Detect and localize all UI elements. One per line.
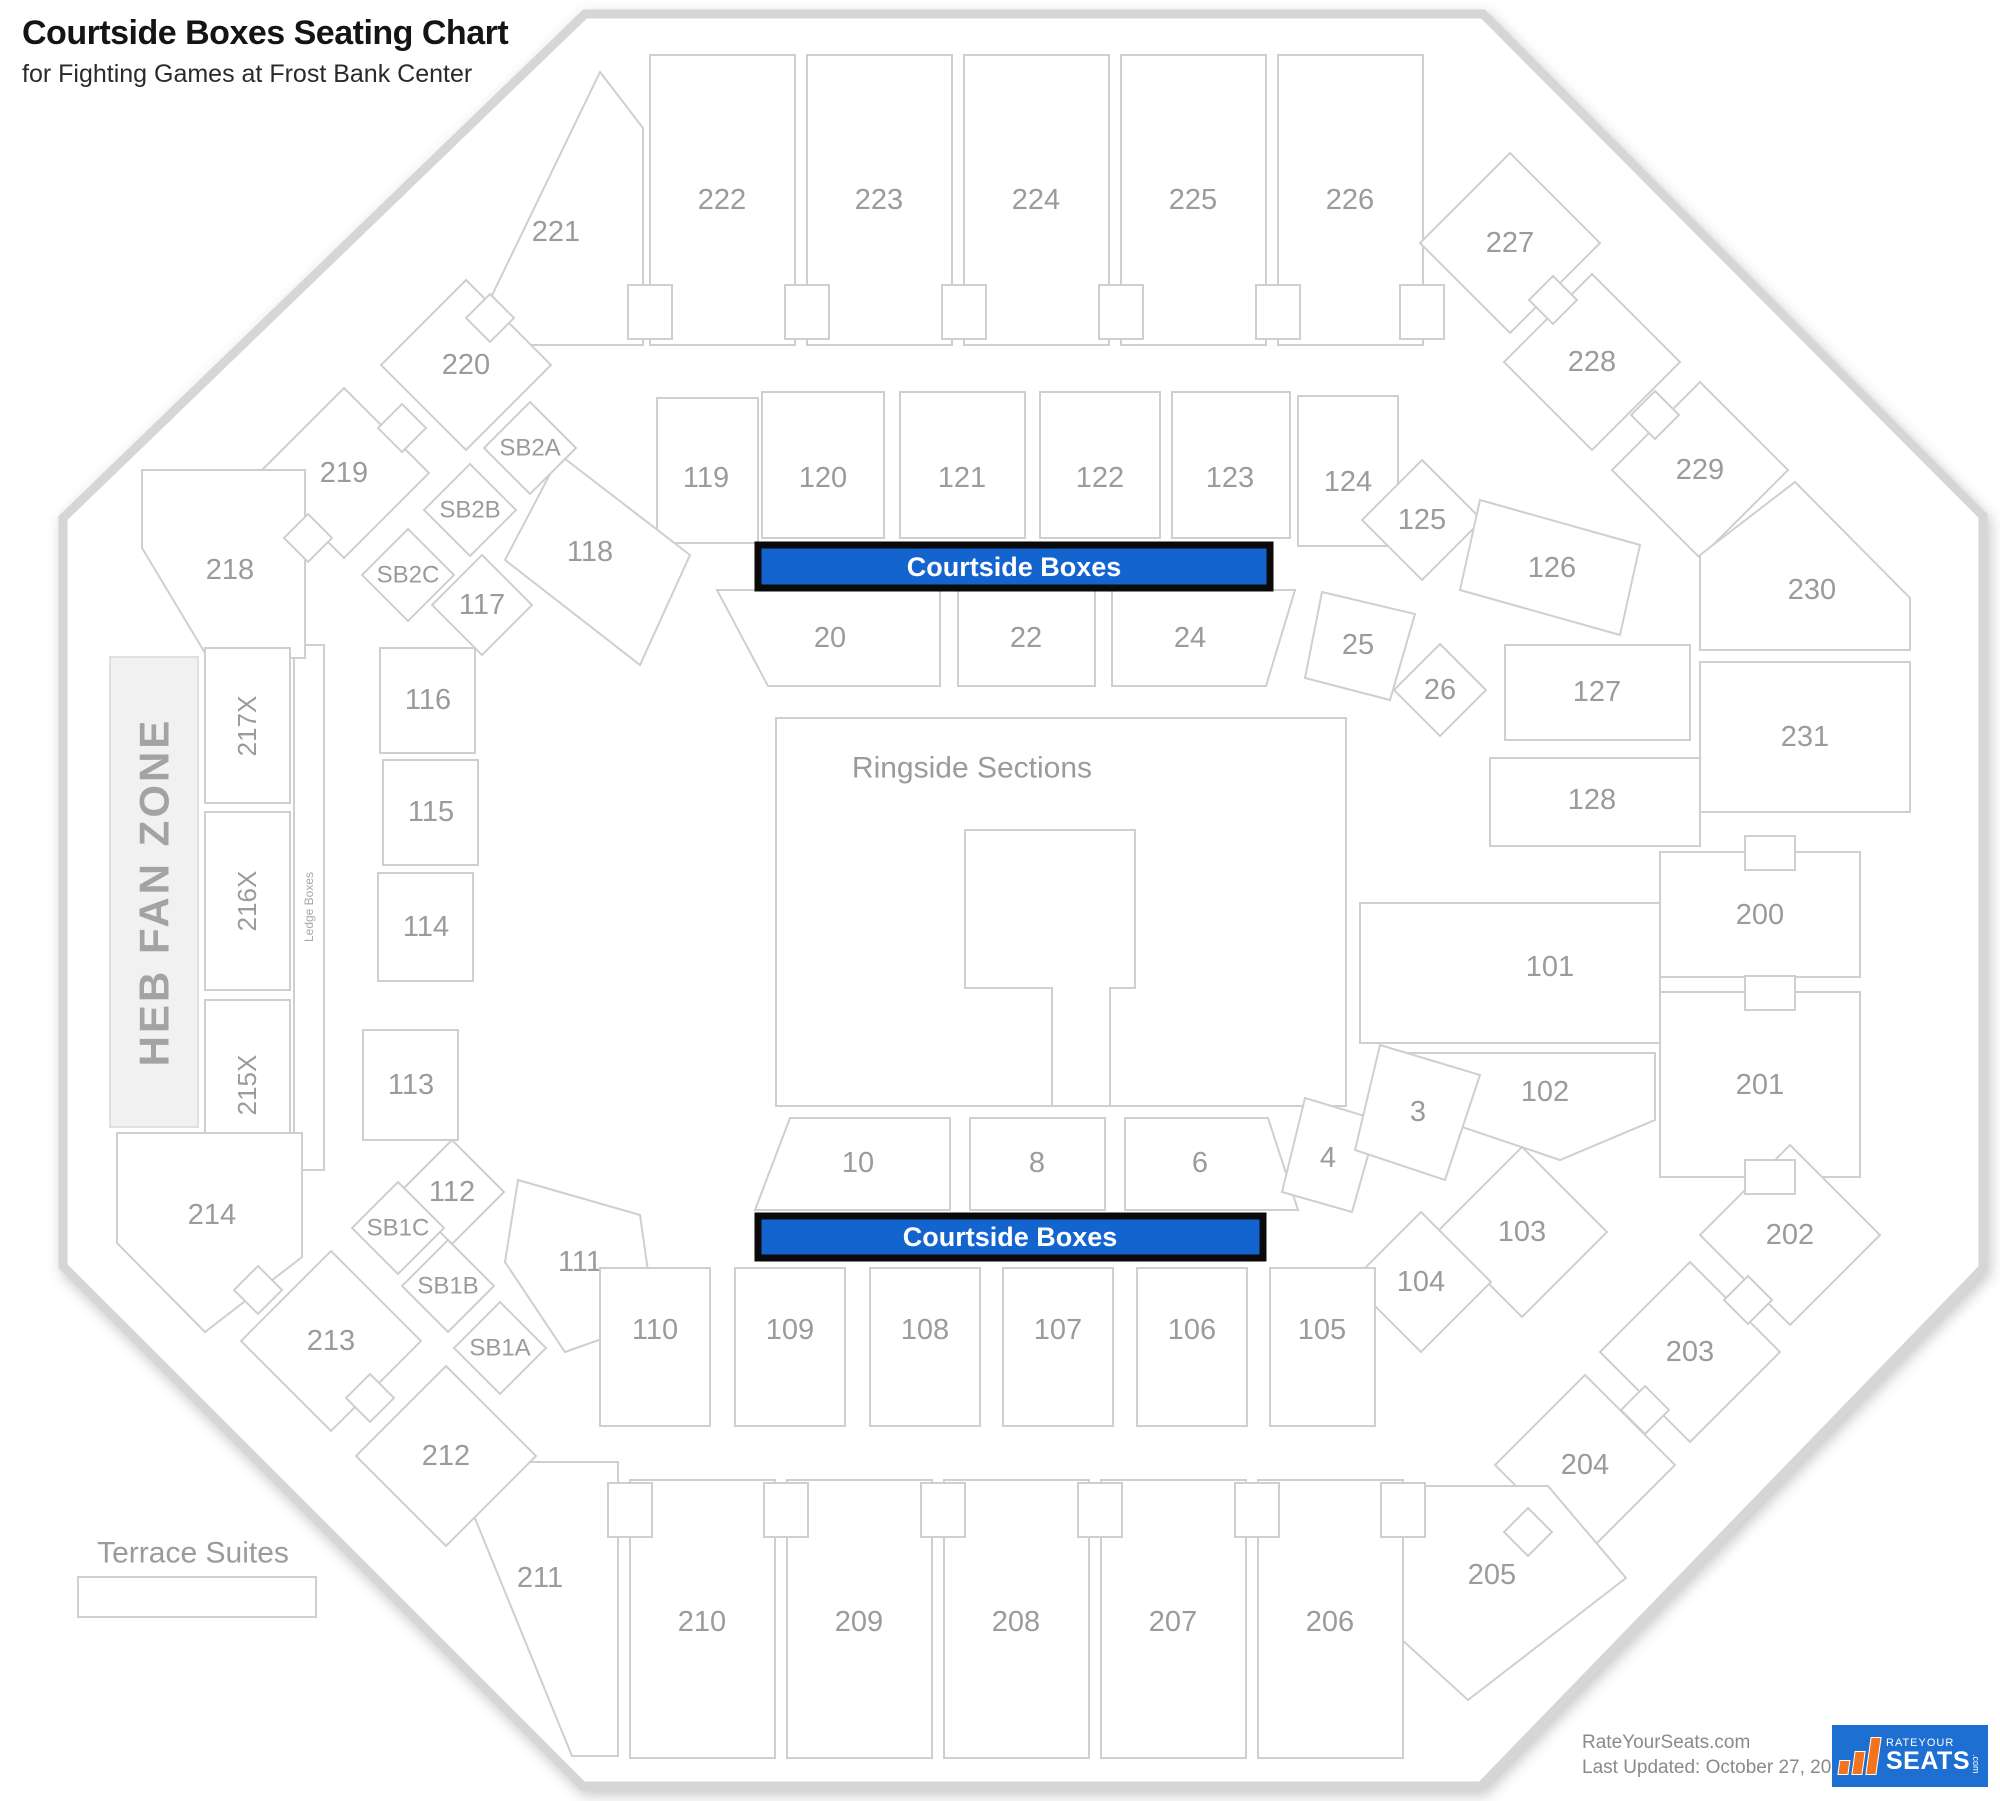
- page-title: Courtside Boxes Seating Chart: [22, 14, 508, 53]
- section-108[interactable]: 108: [870, 1268, 980, 1426]
- courtside-boxes-bottom-label: Courtside Boxes: [903, 1222, 1118, 1252]
- section-109-shape: [735, 1268, 845, 1426]
- section-118-label: 118: [567, 536, 613, 568]
- section-224-label: 224: [1012, 184, 1060, 216]
- ringside-label: Ringside Sections: [852, 752, 1092, 785]
- section-107-shape: [1003, 1268, 1113, 1426]
- section-113-label: 113: [388, 1069, 434, 1101]
- section-201-label: 201: [1736, 1069, 1784, 1101]
- section-217x-label: 217X: [232, 696, 262, 757]
- section-105-shape: [1270, 1268, 1375, 1426]
- section-228-label: 228: [1568, 346, 1616, 378]
- heb-fan-zone-label: HEB FAN ZONE: [131, 718, 178, 1067]
- section-106[interactable]: 106: [1137, 1268, 1247, 1426]
- section-206-label: 206: [1306, 1606, 1354, 1638]
- section-6-shape: [1125, 1118, 1298, 1210]
- section-113[interactable]: 113: [363, 1030, 458, 1140]
- section-201[interactable]: 201: [1660, 992, 1860, 1177]
- section-123-label: 123: [1206, 462, 1254, 494]
- section-sb1a-label: SB1A: [469, 1335, 530, 1362]
- zone-ledge-boxes[interactable]: Ledge Boxes: [294, 645, 324, 1170]
- section-110-shape: [600, 1268, 710, 1426]
- section-226-label: 226: [1326, 184, 1374, 216]
- logo-text: RATEYOUR SEATS.com: [1886, 1738, 1980, 1774]
- section-128-label: 128: [1568, 784, 1616, 816]
- section-120[interactable]: 120: [762, 392, 884, 538]
- section-107[interactable]: 107: [1003, 1268, 1113, 1426]
- section-229-label: 229: [1676, 454, 1724, 486]
- terrace-suites-label: Terrace Suites: [97, 1537, 289, 1570]
- section-116[interactable]: 116: [380, 648, 475, 753]
- section-sb2b-label: SB2B: [439, 497, 500, 524]
- section-123[interactable]: 123: [1172, 392, 1290, 538]
- section-24[interactable]: 24: [1112, 590, 1295, 686]
- section-213-label: 213: [307, 1325, 355, 1357]
- section-218-label: 218: [206, 554, 254, 586]
- section-102-label: 102: [1521, 1076, 1569, 1108]
- section-112-label: 112: [429, 1176, 475, 1208]
- section-120-label: 120: [799, 462, 847, 494]
- section-122-label: 122: [1076, 462, 1124, 494]
- section-20-label: 20: [814, 622, 846, 654]
- section-119-label: 119: [683, 462, 729, 494]
- section-10-label: 10: [842, 1147, 874, 1179]
- section-106-shape: [1137, 1268, 1247, 1426]
- section-109-label: 109: [766, 1314, 814, 1346]
- section-121[interactable]: 121: [900, 392, 1025, 538]
- section-207-label: 207: [1149, 1606, 1197, 1638]
- section-26-label: 26: [1424, 674, 1456, 706]
- section-114-label: 114: [403, 911, 449, 943]
- section-106-label: 106: [1168, 1314, 1216, 1346]
- section-6[interactable]: 6: [1125, 1118, 1298, 1210]
- section-8[interactable]: 8: [970, 1118, 1105, 1210]
- section-231[interactable]: 231: [1700, 662, 1910, 812]
- section-209-label: 209: [835, 1606, 883, 1638]
- section-127[interactable]: 127: [1505, 645, 1690, 740]
- section-110[interactable]: 110: [600, 1268, 710, 1426]
- section-127-label: 127: [1573, 676, 1621, 708]
- section-110-label: 110: [632, 1314, 678, 1346]
- section-8-label: 8: [1029, 1147, 1045, 1179]
- section-105[interactable]: 105: [1270, 1268, 1375, 1426]
- section-25-label: 25: [1342, 629, 1374, 661]
- section-116-label: 116: [405, 684, 451, 716]
- section-103-label: 103: [1498, 1216, 1546, 1248]
- section-10[interactable]: 10: [755, 1118, 950, 1210]
- section-22[interactable]: 22: [958, 590, 1095, 686]
- logo-com: .com: [1971, 1754, 1980, 1774]
- section-22-label: 22: [1010, 622, 1042, 654]
- courtside-boxes-top-label: Courtside Boxes: [907, 552, 1122, 582]
- section-101-label: 101: [1526, 951, 1574, 983]
- section-108-shape: [870, 1268, 980, 1426]
- rateyourseats-logo[interactable]: RATEYOUR SEATS.com: [1832, 1725, 1988, 1787]
- section-3-label: 3: [1410, 1096, 1426, 1128]
- footer-credits: RateYourSeats.com Last Updated: October …: [1582, 1730, 1852, 1780]
- section-109[interactable]: 109: [735, 1268, 845, 1426]
- section-117-label: 117: [459, 589, 505, 621]
- section-219-label: 219: [320, 457, 368, 489]
- section-114[interactable]: 114: [378, 873, 473, 981]
- section-205-label: 205: [1468, 1559, 1516, 1591]
- section-217x[interactable]: 217X: [205, 648, 290, 803]
- section-204-label: 204: [1561, 1449, 1609, 1481]
- seating-map: HEB FAN ZONE Ledge Boxes Ringside Sectio…: [0, 0, 2000, 1801]
- courtside-boxes-bottom[interactable]: Courtside Boxes: [758, 1216, 1263, 1258]
- section-122[interactable]: 122: [1040, 392, 1160, 538]
- page-subtitle: for Fighting Games at Frost Bank Center: [22, 60, 472, 89]
- section-216x-label: 216X: [232, 871, 262, 932]
- section-101[interactable]: 101: [1360, 903, 1660, 1043]
- section-sb1c-label: SB1C: [367, 1215, 430, 1242]
- section-115[interactable]: 115: [383, 760, 478, 865]
- section-126-label: 126: [1528, 552, 1576, 584]
- section-222-label: 222: [698, 184, 746, 216]
- section-221-label: 221: [532, 216, 580, 248]
- section-128[interactable]: 128: [1490, 758, 1700, 846]
- section-231-label: 231: [1781, 721, 1829, 753]
- section-211-label: 211: [517, 1562, 563, 1594]
- section-sb2c-label: SB2C: [377, 562, 440, 589]
- section-220-label: 220: [442, 349, 490, 381]
- section-202-label: 202: [1766, 1219, 1814, 1251]
- logo-seats: SEATS: [1886, 1749, 1970, 1774]
- section-107-label: 107: [1034, 1314, 1082, 1346]
- section-216x[interactable]: 216X: [205, 812, 290, 990]
- section-6-label: 6: [1192, 1147, 1208, 1179]
- section-124-label: 124: [1324, 466, 1372, 498]
- section-200-label: 200: [1736, 899, 1784, 931]
- seating-chart-page: HEB FAN ZONE Ledge Boxes Ringside Sectio…: [0, 0, 2000, 1801]
- section-115-label: 115: [408, 796, 454, 828]
- courtside-boxes-top[interactable]: Courtside Boxes: [758, 545, 1270, 588]
- section-24-label: 24: [1174, 622, 1206, 654]
- section-121-label: 121: [938, 462, 986, 494]
- section-125-label: 125: [1398, 504, 1446, 536]
- section-4-label: 4: [1320, 1142, 1336, 1174]
- logo-barchart-icon: [1837, 1737, 1881, 1775]
- section-104-label: 104: [1397, 1266, 1445, 1298]
- zone-terrace-suites[interactable]: Terrace Suites: [78, 1537, 316, 1618]
- section-108-label: 108: [901, 1314, 949, 1346]
- ledge-boxes-label: Ledge Boxes: [302, 872, 316, 942]
- footer-updated: Last Updated: October 27, 2025: [1582, 1755, 1852, 1780]
- zone-heb-fan-zone[interactable]: HEB FAN ZONE: [110, 657, 198, 1127]
- section-223-label: 223: [855, 184, 903, 216]
- section-119[interactable]: 119: [657, 398, 758, 543]
- section-214-label: 214: [188, 1199, 236, 1231]
- section-230-label: 230: [1788, 574, 1836, 606]
- section-sb1b-label: SB1B: [417, 1273, 478, 1300]
- section-101-shape: [1360, 903, 1660, 1043]
- section-sb2a-label: SB2A: [499, 435, 560, 462]
- footer-site[interactable]: RateYourSeats.com: [1582, 1730, 1852, 1755]
- section-212-label: 212: [422, 1440, 470, 1472]
- section-227-label: 227: [1486, 227, 1534, 259]
- terrace-suites-shape: [78, 1577, 316, 1617]
- section-203-label: 203: [1666, 1336, 1714, 1368]
- section-210-label: 210: [678, 1606, 726, 1638]
- section-105-label: 105: [1298, 1314, 1346, 1346]
- section-111-label: 111: [558, 1246, 602, 1278]
- section-208-label: 208: [992, 1606, 1040, 1638]
- section-225-label: 225: [1169, 184, 1217, 216]
- section-215x-label: 215X: [232, 1055, 262, 1116]
